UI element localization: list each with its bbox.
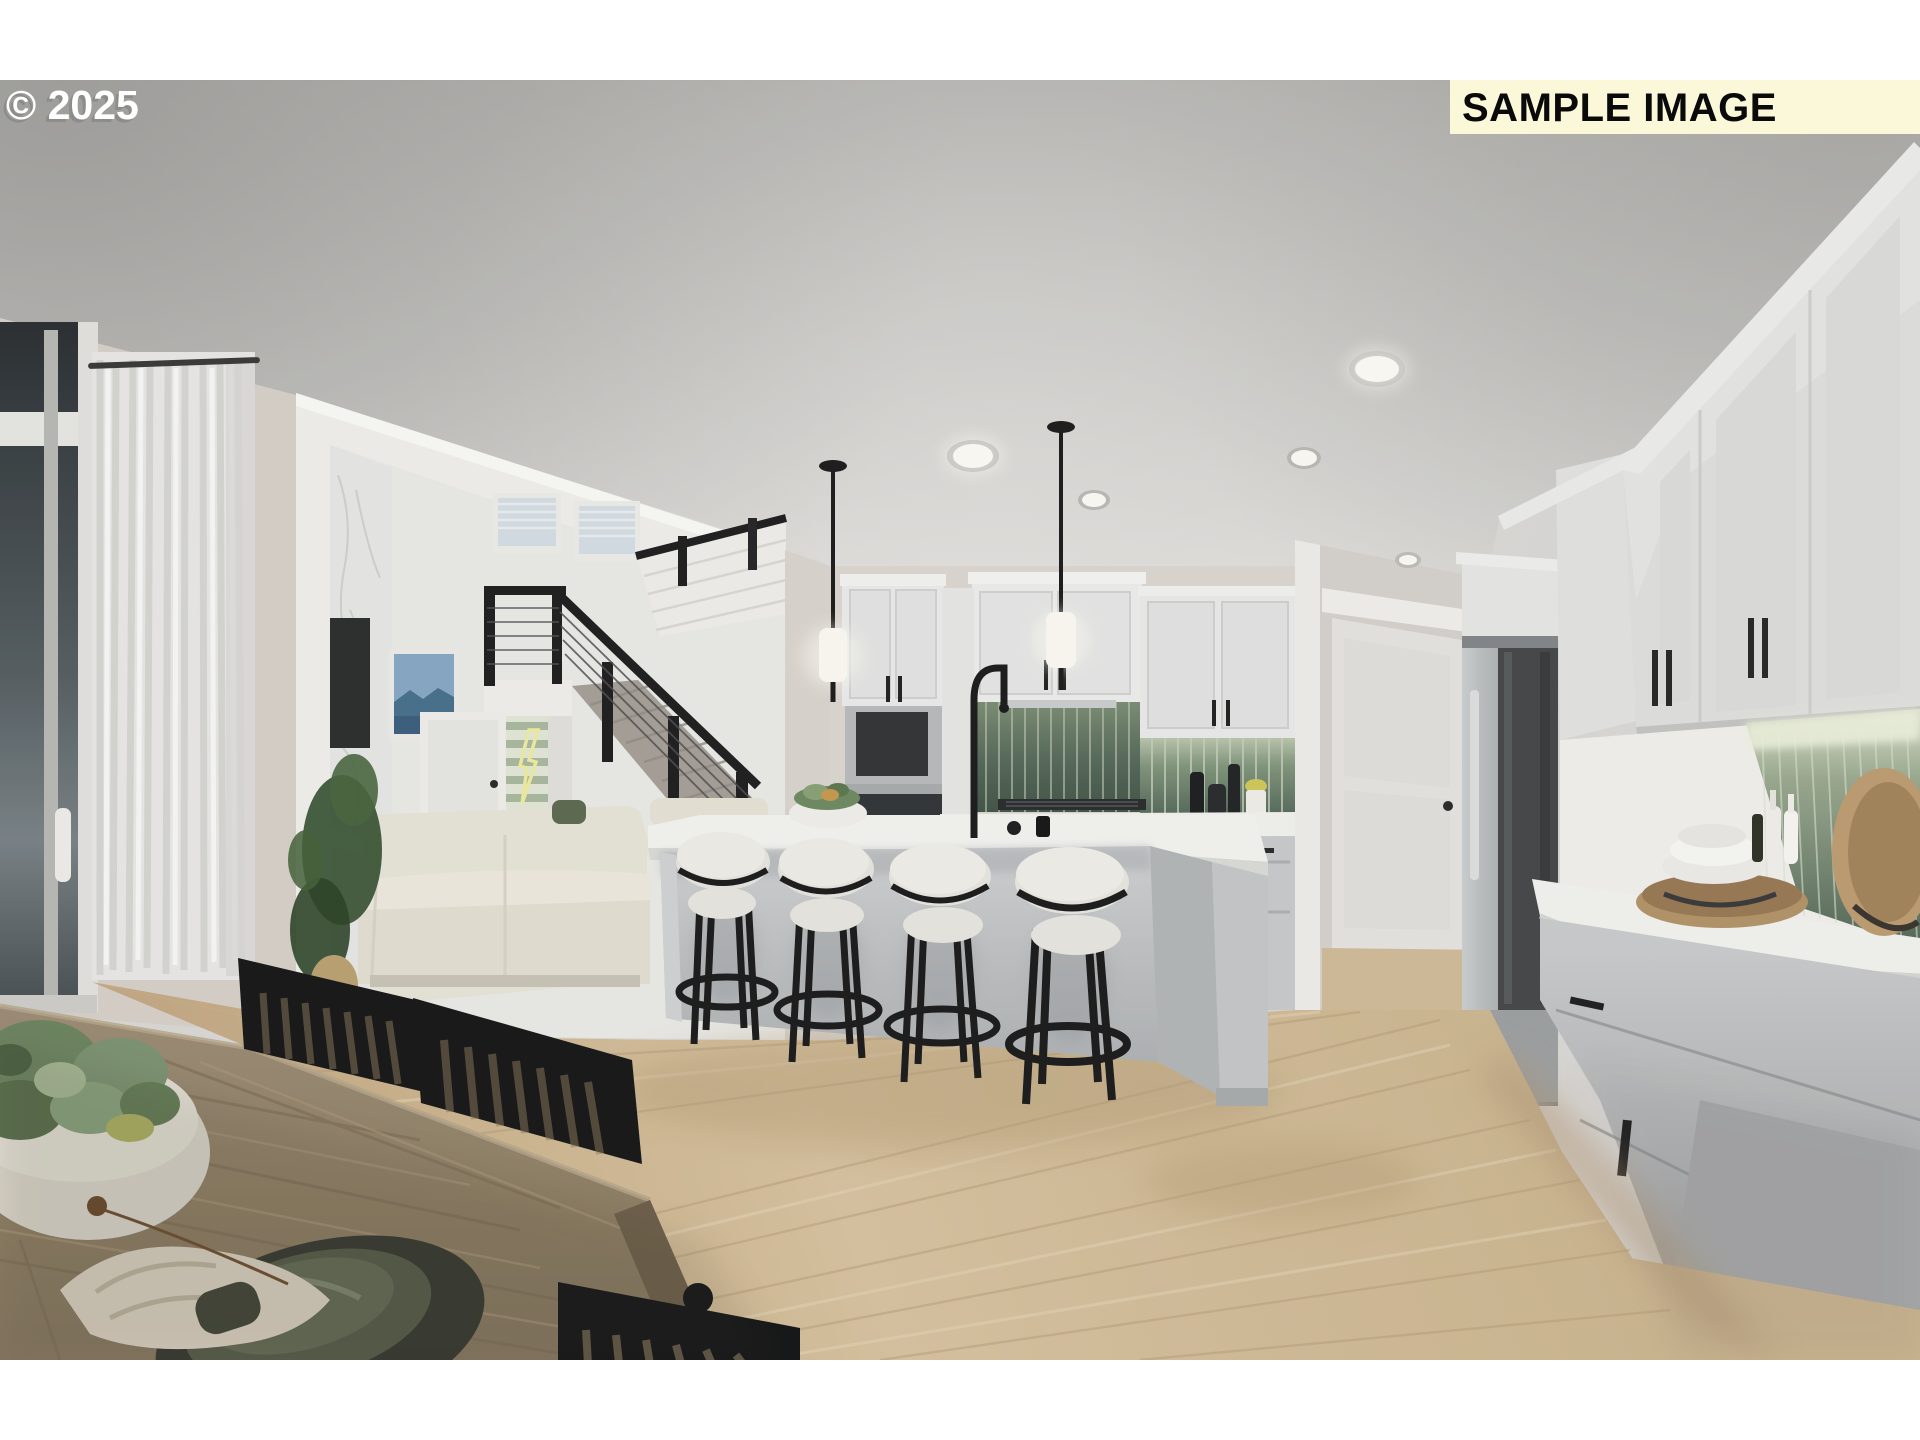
svg-text:SAMPLE IMAGE: SAMPLE IMAGE — [1462, 86, 1777, 130]
svg-text:© 2025: © 2025 — [6, 82, 139, 128]
